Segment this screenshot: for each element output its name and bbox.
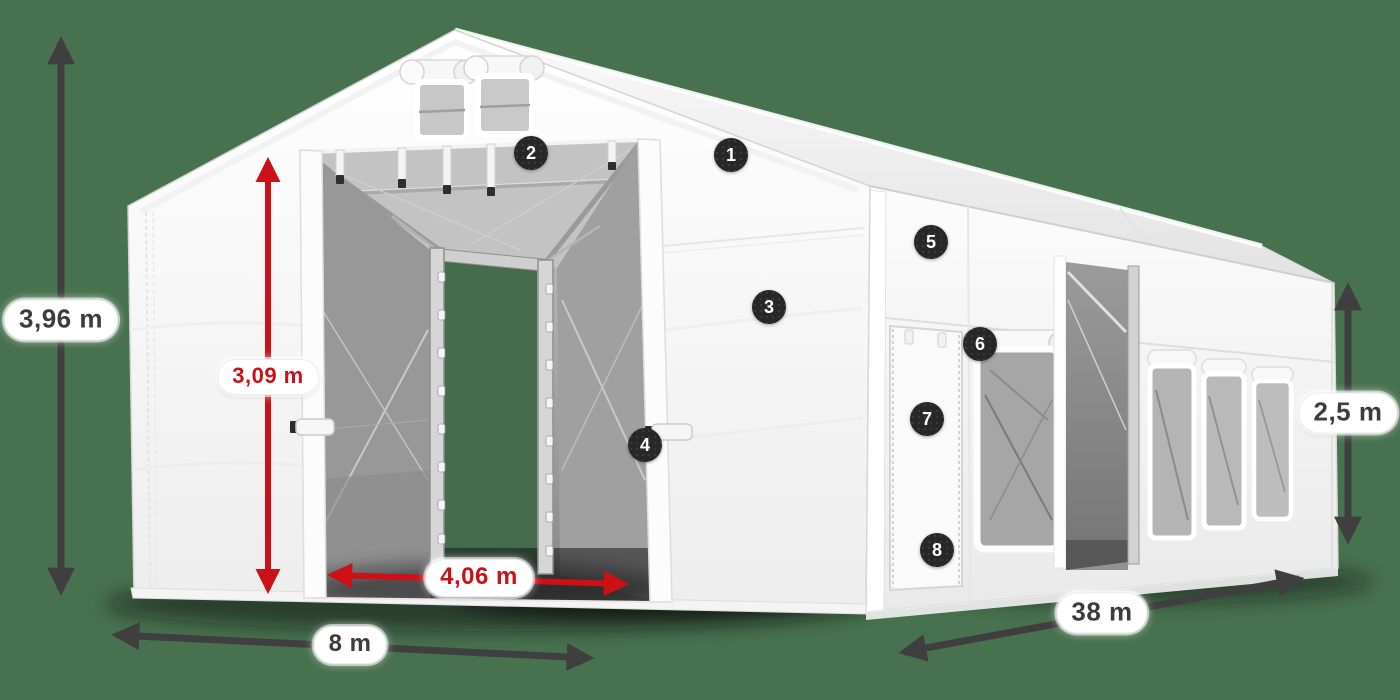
front-entrance-opening: [290, 130, 692, 612]
callout-marker-2[interactable]: 2: [514, 136, 548, 170]
side-window-back-2: [1202, 359, 1246, 528]
measurement-label-side-length: 38 m: [1056, 593, 1147, 634]
side-window-back-1: [1148, 350, 1196, 538]
callout-marker-3[interactable]: 3: [752, 290, 786, 324]
callout-marker-5[interactable]: 5: [914, 225, 948, 259]
tent-illustration: [0, 0, 1400, 700]
callout-marker-1[interactable]: 1: [714, 138, 748, 172]
door-handle-left: [290, 419, 334, 435]
tent-product-diagram: 3,96 m 3,09 m 4,06 m 8 m 38 m 2,5 m 1 2 …: [0, 0, 1400, 700]
measurement-label-total-height: 3,96 m: [4, 300, 118, 341]
callout-marker-8[interactable]: 8: [920, 533, 954, 567]
side-window-back-3: [1252, 367, 1293, 519]
callout-marker-7[interactable]: 7: [910, 402, 944, 436]
measurement-label-side-wall-height: 2,5 m: [1299, 393, 1398, 434]
callout-marker-4[interactable]: 4: [628, 428, 662, 462]
measurement-label-entrance-height: 3,09 m: [217, 359, 319, 395]
measurement-label-entrance-width: 4,06 m: [425, 559, 533, 597]
callout-marker-6[interactable]: 6: [963, 327, 997, 361]
measurement-label-front-width: 8 m: [314, 626, 387, 664]
mid-entrance-opening: [1054, 256, 1139, 570]
